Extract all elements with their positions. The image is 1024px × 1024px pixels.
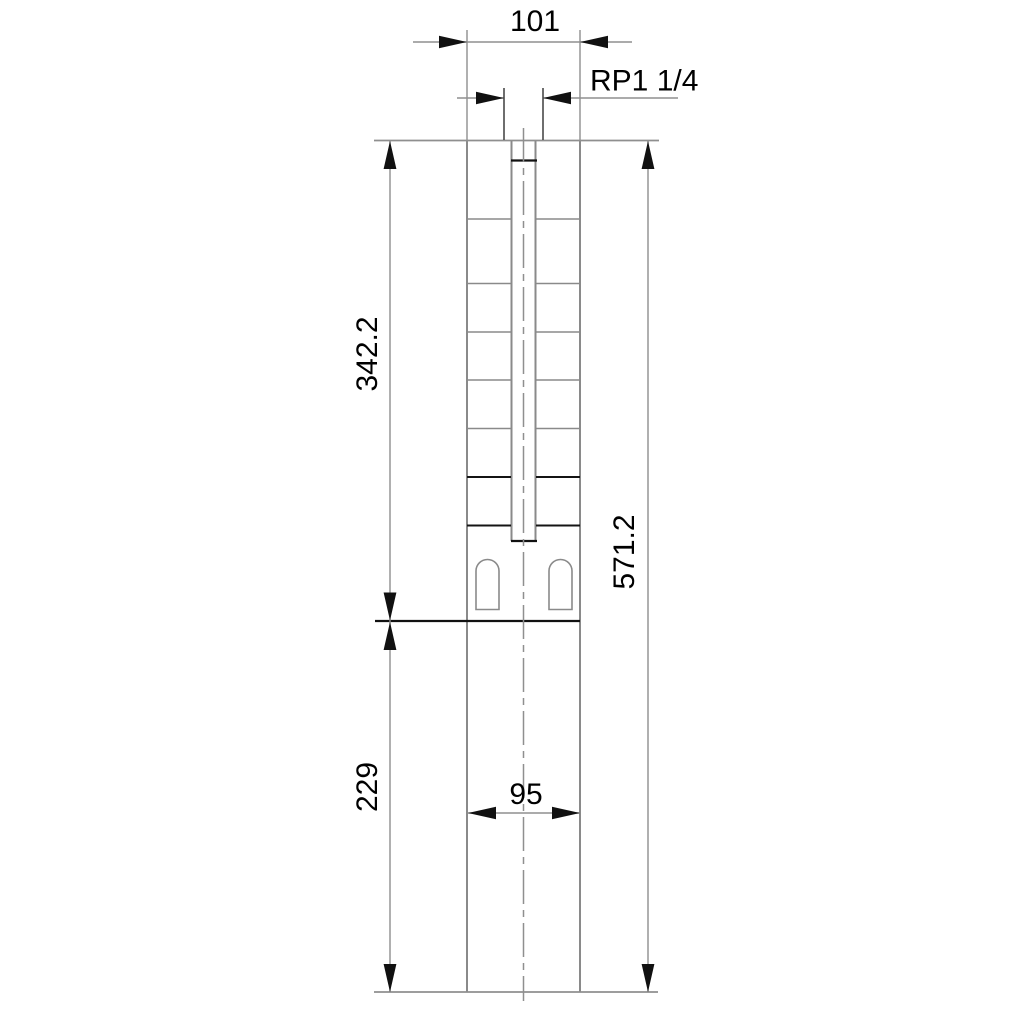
dimension-labels: 101 RP1 1/4 342.2 571.2 229 95 [351,5,698,812]
dim-label-bottom-width: 95 [509,778,542,811]
drawing-canvas: 101 RP1 1/4 342.2 571.2 229 95 [0,0,1024,1024]
dim-label-top-width: 101 [510,5,560,38]
dim-label-pump-section-length: 342.2 [351,316,384,391]
dim-label-port-thread: RP1 1/4 [590,65,698,98]
dim-label-motor-section-length: 229 [351,762,384,812]
dimension-arrows [384,36,655,992]
dimension-lines [390,30,678,992]
suction-slot-left [476,560,499,610]
ext-lines-top-width [467,30,580,140]
suction-slot-right [549,560,572,610]
pump-dimensional-drawing: 101 RP1 1/4 342.2 571.2 229 95 [0,0,1024,1024]
arrows-port-thread [476,92,571,104]
dim-label-overall-length: 571.2 [608,514,641,589]
